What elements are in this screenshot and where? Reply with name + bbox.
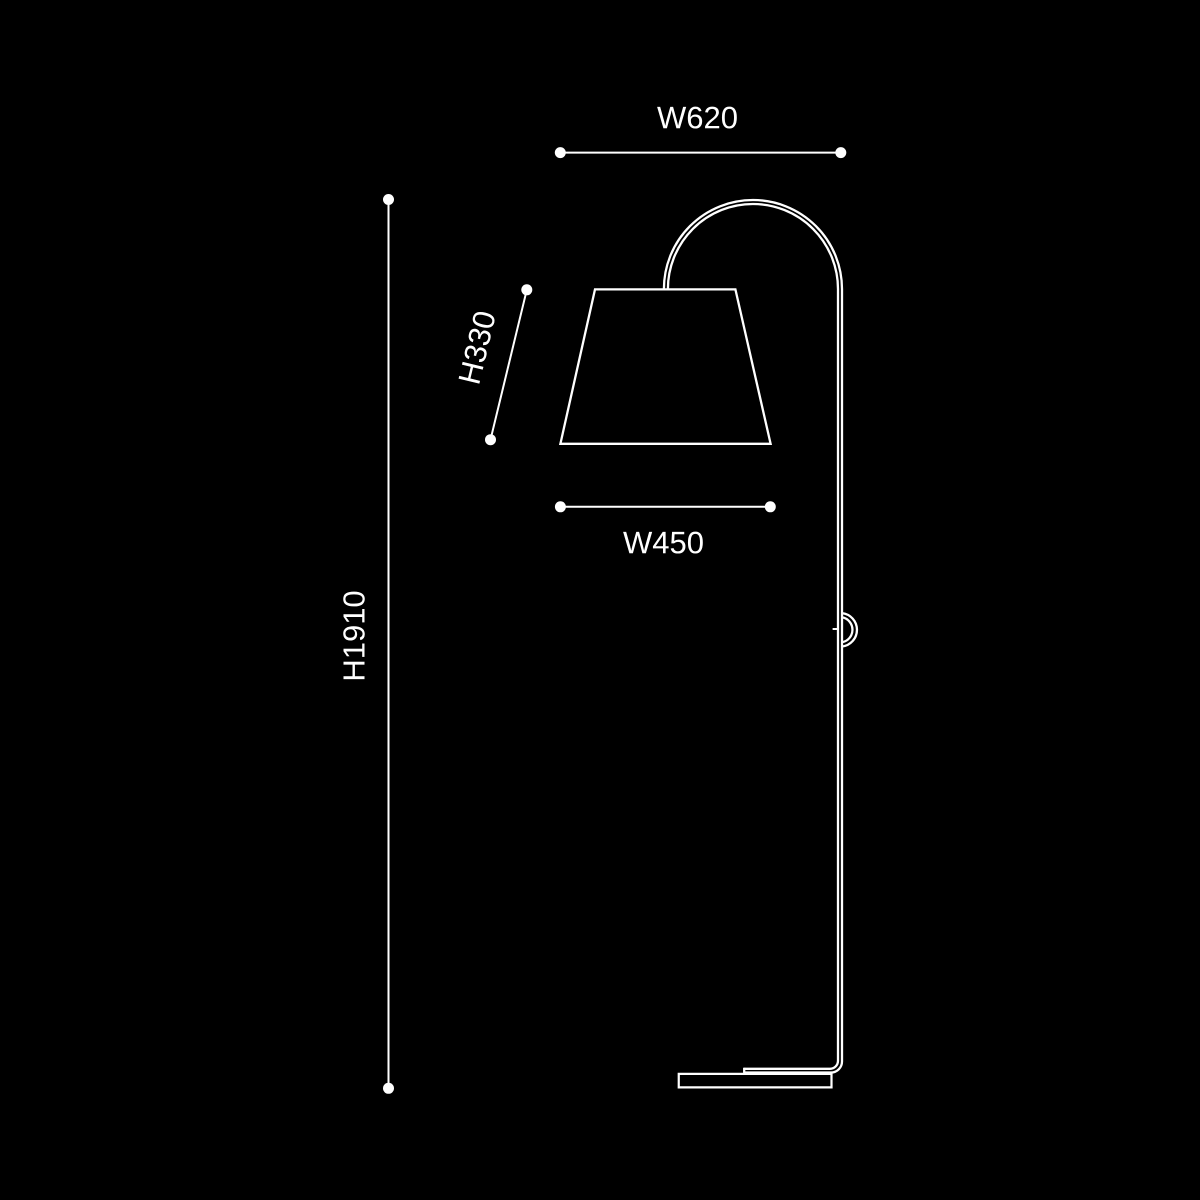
svg-text:H1910: H1910 bbox=[337, 590, 372, 681]
svg-text:W450: W450 bbox=[623, 525, 704, 560]
svg-text:W620: W620 bbox=[657, 100, 738, 135]
